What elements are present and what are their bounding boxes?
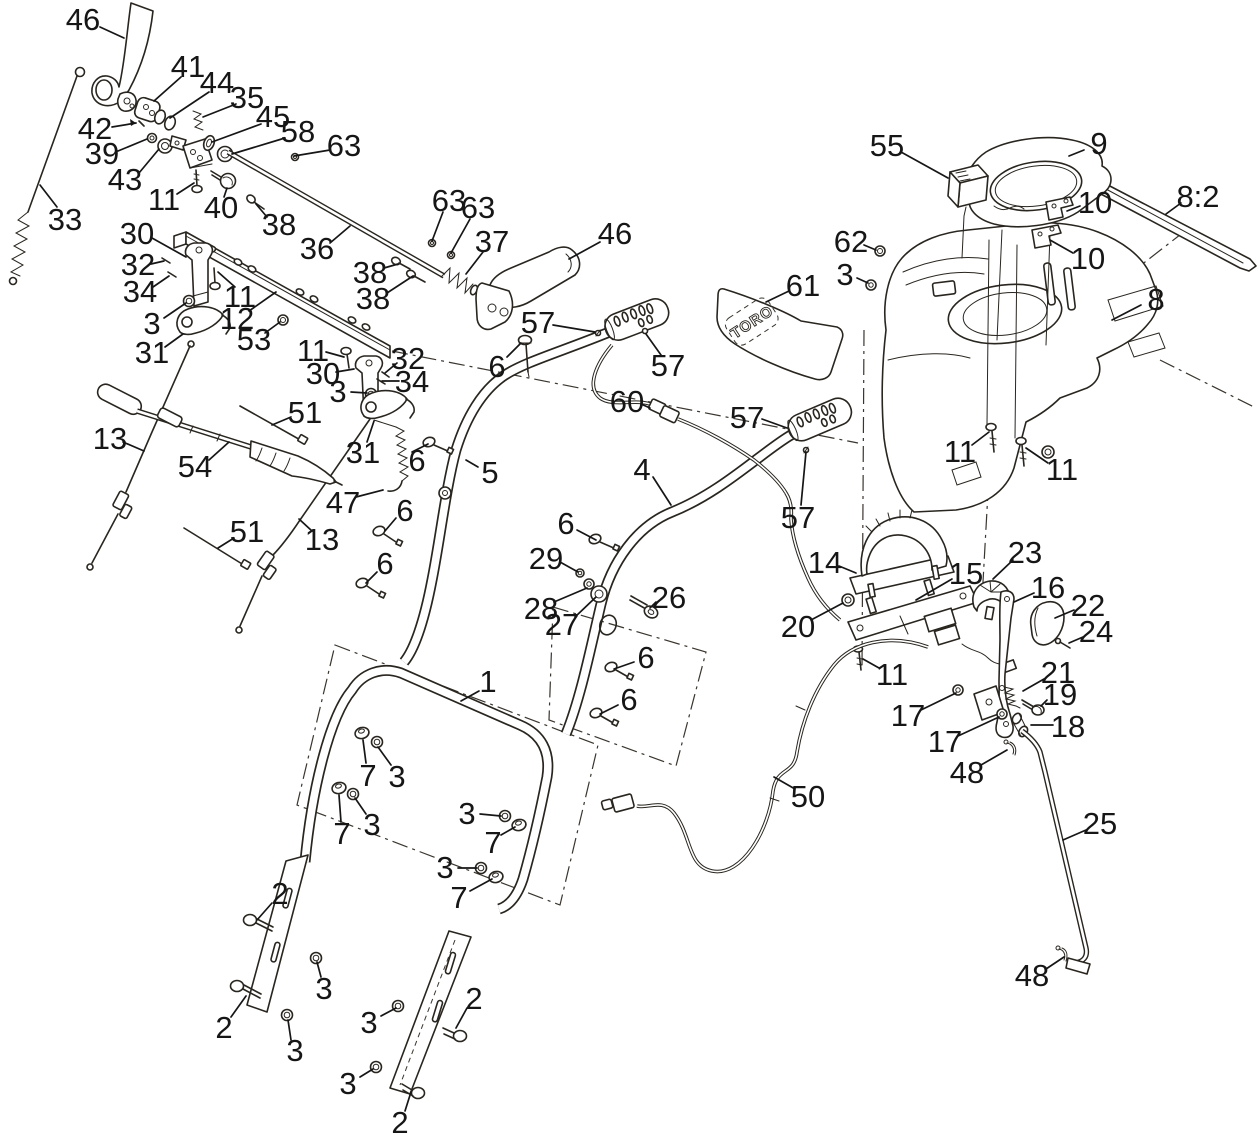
callout-3: 3: [836, 257, 853, 292]
callout-leader-3: [857, 278, 868, 283]
callout-53: 53: [237, 322, 271, 357]
callout-leader-45: [212, 124, 261, 142]
callout-57: 57: [651, 348, 685, 383]
callout-leader-4: [653, 477, 671, 505]
flange-nut: [348, 789, 359, 800]
callout-48: 48: [1015, 958, 1049, 993]
callout-17: 17: [928, 724, 962, 759]
callout-leader-38: [387, 276, 413, 293]
callout-62: 62: [834, 224, 868, 259]
callout-15: 15: [949, 556, 983, 591]
callout-2: 2: [215, 1010, 232, 1045]
callout-37: 37: [475, 224, 509, 259]
brand-decal: TORO: [717, 289, 843, 380]
callout-29: 29: [529, 541, 563, 576]
callout-60: 60: [610, 384, 644, 419]
console-assembly: TORO: [717, 138, 1256, 512]
callout-3: 3: [363, 807, 380, 842]
callout-13: 13: [305, 522, 339, 557]
callout-6: 6: [488, 349, 505, 384]
callout-leader-3: [351, 392, 367, 393]
callout-leader-17: [921, 693, 956, 710]
callout-23: 23: [1008, 535, 1042, 570]
flange-nut: [282, 1010, 293, 1021]
callout-19: 19: [1043, 677, 1077, 712]
cotter-pin: [1004, 740, 1016, 755]
callout-30: 30: [120, 216, 154, 251]
saddle-washer: [511, 818, 527, 832]
callout-7: 7: [359, 758, 376, 793]
hex-bolt: [443, 1028, 467, 1042]
callout-33: 33: [48, 202, 82, 237]
callout-61: 61: [786, 268, 820, 303]
callout-24: 24: [1079, 614, 1113, 649]
chute-crank-assembly: [10, 3, 479, 296]
callout-38: 38: [356, 281, 390, 316]
handle-strap: [390, 931, 471, 1094]
callout-leader-58: [232, 138, 285, 154]
chute-rod-grip: [95, 381, 144, 417]
callout-leader-57: [801, 452, 806, 505]
callout-55: 55: [870, 128, 904, 163]
callout-6: 6: [396, 493, 413, 528]
callout-3: 3: [286, 1033, 303, 1068]
callout-46: 46: [66, 2, 100, 37]
callout-leader-6: [366, 572, 377, 583]
callout-63: 63: [461, 190, 495, 225]
parts-diagram-page: TORO: [0, 0, 1258, 1138]
saddle-washer: [331, 781, 347, 795]
callout-11: 11: [944, 434, 976, 469]
callout-leader-3: [360, 1069, 373, 1077]
callout-16: 16: [1031, 570, 1065, 605]
callout-34: 34: [123, 274, 157, 309]
callout-leader-57: [553, 325, 595, 332]
belt-cover: [850, 510, 954, 597]
callout-43: 43: [108, 162, 142, 197]
callout-57: 57: [521, 305, 555, 340]
callout-7: 7: [333, 816, 350, 851]
callout-58: 58: [281, 114, 315, 149]
callout-18: 18: [1051, 709, 1085, 744]
callout-7: 7: [450, 880, 467, 915]
heated-grip: [784, 394, 855, 445]
callout-6: 6: [408, 443, 425, 478]
callout-leader-63: [294, 150, 330, 156]
callout-6: 6: [637, 640, 654, 675]
callout-38: 38: [262, 207, 296, 242]
callout-14: 14: [808, 545, 842, 580]
callout-leader-7: [501, 827, 515, 835]
callout-leader-7: [470, 879, 492, 891]
callout-3: 3: [339, 1066, 356, 1101]
callout-10: 10: [1071, 241, 1105, 276]
callout-leader-55: [901, 152, 948, 178]
callout-3: 3: [315, 971, 332, 1006]
callout-40: 40: [204, 190, 238, 225]
callout-10: 10: [1078, 185, 1112, 220]
callout-9: 9: [1090, 126, 1107, 161]
callout-6: 6: [376, 546, 393, 581]
callout-leader-28: [554, 588, 587, 602]
callout-3: 3: [388, 759, 405, 794]
callout-8:2: 8:2: [1176, 179, 1219, 214]
tension-spring: [10, 68, 85, 285]
chute-crank-lever: [92, 3, 153, 106]
callout-leader-6: [385, 518, 396, 531]
chute-rod-spiral: [250, 441, 336, 484]
callout-54: 54: [178, 449, 212, 484]
flange-nut: [311, 953, 322, 964]
callout-63: 63: [327, 128, 361, 163]
exploded-parts-diagram: TORO: [0, 0, 1258, 1138]
callout-50: 50: [791, 779, 825, 814]
callout-3: 3: [458, 796, 475, 831]
shift-rod: [1022, 731, 1086, 964]
callout-11: 11: [876, 657, 908, 692]
callout-34: 34: [395, 364, 429, 399]
callout-6: 6: [620, 682, 637, 717]
callout-2: 2: [271, 876, 288, 911]
callout-8: 8: [1147, 282, 1164, 317]
callout-20: 20: [781, 609, 815, 644]
callout-46: 46: [598, 216, 632, 251]
callout-48: 48: [950, 755, 984, 790]
callout-36: 36: [300, 231, 334, 266]
callout-27: 27: [545, 607, 579, 642]
callout-57: 57: [730, 400, 764, 435]
callout-3: 3: [329, 374, 346, 409]
callout-57: 57: [781, 500, 815, 535]
callout-51: 51: [230, 514, 264, 549]
callout-leader-2: [231, 996, 246, 1017]
callout-leader-2: [257, 903, 272, 920]
callout-4: 4: [633, 452, 650, 487]
callout-47: 47: [326, 485, 360, 520]
callout-leader-39: [118, 139, 147, 151]
callout-leader-6: [600, 705, 618, 714]
callout-11: 11: [148, 182, 180, 217]
callout-7: 7: [484, 825, 501, 860]
callout-leader-46: [100, 27, 124, 38]
carriage-bolt: [588, 533, 620, 551]
heated-grip: [601, 295, 672, 344]
callout-5: 5: [481, 455, 498, 490]
callout-leader-6: [507, 343, 521, 357]
carriage-bolt: [589, 707, 619, 726]
callout-1: 1: [479, 664, 496, 699]
callout-leader-17: [958, 717, 999, 736]
callout-17: 17: [891, 698, 925, 733]
callout-leader-3: [381, 1008, 396, 1016]
callout-26: 26: [652, 580, 686, 615]
console-housing: [882, 223, 1157, 512]
callout-31: 31: [346, 435, 380, 470]
callout-2: 2: [465, 981, 482, 1016]
callout-leader-3: [480, 814, 501, 816]
callout-3: 3: [360, 1005, 377, 1040]
saddle-washer: [354, 726, 370, 740]
callout-51: 51: [288, 395, 322, 430]
callout-25: 25: [1083, 806, 1117, 841]
callout-leader-5: [466, 460, 478, 467]
saddle-washer: [488, 870, 504, 884]
callout-6: 6: [557, 506, 574, 541]
callout-11: 11: [1046, 452, 1078, 487]
flange-nut: [371, 1062, 382, 1073]
callout-31: 31: [135, 335, 169, 370]
flange-nut: [372, 737, 383, 748]
callout-13: 13: [93, 421, 127, 456]
callout-leader-48: [981, 750, 1007, 765]
callout-2: 2: [391, 1105, 408, 1138]
